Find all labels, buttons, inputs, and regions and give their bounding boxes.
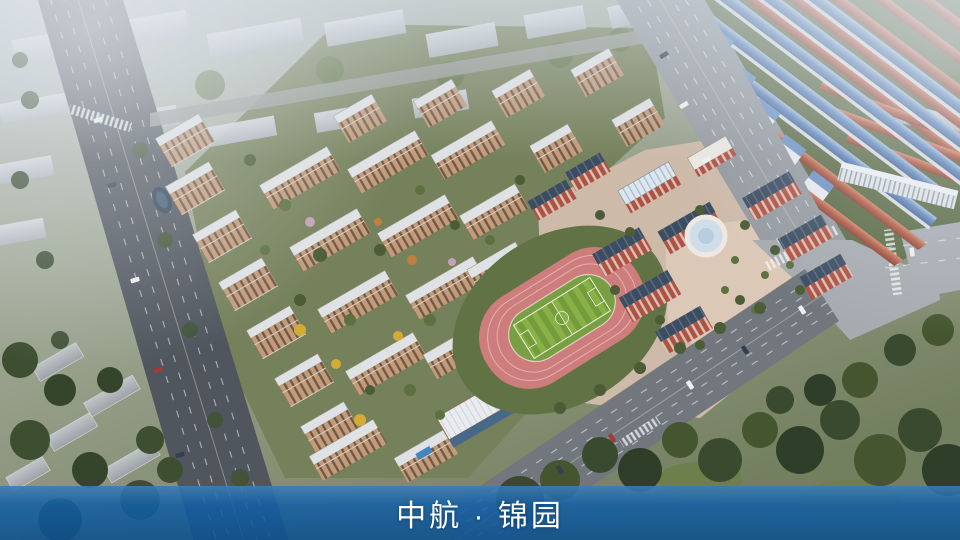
haze-overlay: [0, 0, 960, 540]
masterplan-rendering: 中航 · 锦园: [0, 0, 960, 540]
aerial-scene: [0, 0, 960, 540]
project-title: 中航 · 锦园: [396, 491, 564, 535]
project-title-banner: 中航 · 锦园: [0, 486, 960, 540]
